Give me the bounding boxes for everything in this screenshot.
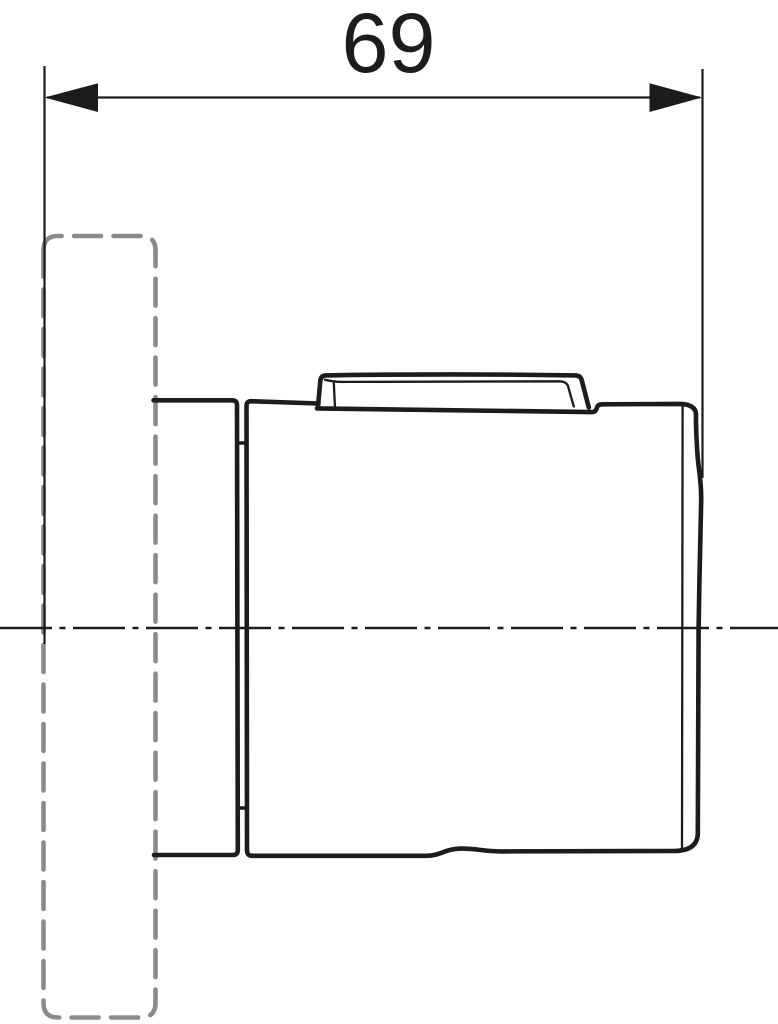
svg-text:69: 69: [342, 0, 436, 90]
